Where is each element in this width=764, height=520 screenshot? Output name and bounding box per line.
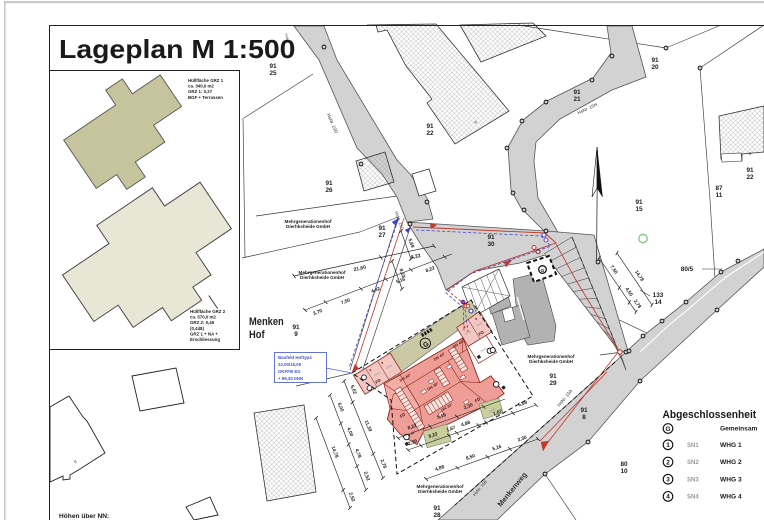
svg-text:SN4: SN4	[687, 495, 699, 501]
svg-text:91: 91	[269, 63, 277, 70]
svg-text:22,00/15,00: 22,00/15,00	[278, 362, 302, 367]
svg-text:14: 14	[654, 299, 662, 306]
svg-text:91: 91	[378, 225, 386, 232]
svg-text:25: 25	[269, 70, 277, 77]
svg-text:91: 91	[580, 407, 588, 414]
svg-text:ca. 570,0 m2: ca. 570,0 m2	[190, 315, 216, 320]
svg-text:Hof: Hof	[249, 329, 265, 341]
svg-text:91: 91	[487, 234, 495, 241]
svg-text:G: G	[666, 426, 671, 433]
svg-text:SN3: SN3	[687, 477, 699, 483]
svg-text:20: 20	[651, 64, 659, 71]
svg-text:(0,448): (0,448)	[190, 326, 204, 331]
svg-text:91: 91	[573, 89, 581, 96]
svg-text:Gemeinsam: Gemeinsam	[720, 426, 758, 433]
svg-text:Baufeld Hoftyp4: Baufeld Hoftyp4	[278, 355, 312, 360]
svg-text:ca. 340,0 m2: ca. 340,0 m2	[188, 84, 214, 89]
svg-text:Abgeschlossenheit: Abgeschlossenheit	[663, 409, 757, 421]
svg-text:BGF + Terrassen: BGF + Terrassen	[188, 95, 223, 100]
svg-text:15: 15	[635, 206, 643, 213]
svg-text:80: 80	[620, 461, 628, 468]
svg-text:91: 91	[549, 373, 557, 380]
svg-text:91: 91	[635, 199, 643, 206]
svg-text:87: 87	[715, 185, 723, 192]
svg-text:Dierhksheide GmbH: Dierhksheide GmbH	[418, 489, 463, 494]
svg-text:22: 22	[426, 130, 434, 137]
svg-text:Dierhksheide GmbH: Dierhksheide GmbH	[300, 275, 345, 280]
svg-text:WHG 4: WHG 4	[720, 494, 742, 501]
svg-text:OKFFB EG: OKFFB EG	[278, 369, 301, 374]
svg-text:SN2: SN2	[687, 460, 699, 466]
svg-text:Hüllfläche GRZ 2: Hüllfläche GRZ 2	[190, 309, 226, 314]
svg-text:Lageplan M 1:500: Lageplan M 1:500	[59, 34, 295, 64]
svg-text:11: 11	[716, 192, 723, 199]
svg-text:10: 10	[620, 468, 628, 475]
svg-text:28: 28	[433, 512, 441, 519]
svg-text:30: 30	[487, 241, 495, 248]
svg-text:1: 1	[666, 442, 670, 449]
svg-text:Höhen über NN:: Höhen über NN:	[59, 513, 109, 520]
svg-text:4: 4	[666, 494, 670, 501]
svg-text:26: 26	[325, 187, 333, 194]
svg-text:21: 21	[573, 96, 581, 103]
svg-text:GRZ 1: 0,27: GRZ 1: 0,27	[188, 89, 213, 94]
svg-text:2: 2	[666, 459, 670, 466]
svg-text:Menken: Menken	[249, 316, 284, 328]
svg-text:91: 91	[325, 180, 333, 187]
svg-text:WHG 2: WHG 2	[720, 459, 742, 466]
svg-text:91: 91	[651, 57, 659, 64]
svg-text:133: 133	[653, 292, 664, 299]
svg-text:II: II	[749, 151, 751, 156]
svg-text:WHG 3: WHG 3	[720, 476, 742, 483]
svg-text:SN1: SN1	[687, 443, 699, 449]
svg-text:Dierhksheide GmbH: Dierhksheide GmbH	[529, 359, 574, 364]
svg-text:8: 8	[582, 414, 586, 421]
svg-text:G: G	[541, 268, 545, 274]
svg-text:91: 91	[292, 324, 300, 331]
svg-text:Dierhksheide GmbH: Dierhksheide GmbH	[286, 224, 331, 229]
svg-text:29: 29	[549, 380, 557, 387]
svg-text:9: 9	[294, 331, 298, 338]
svg-text:GRZ 2: 0,45: GRZ 2: 0,45	[190, 320, 215, 325]
svg-text:GRZ 1 + NA +: GRZ 1 + NA +	[190, 331, 218, 336]
svg-text:80/5: 80/5	[681, 266, 694, 273]
svg-text:27: 27	[378, 232, 386, 239]
svg-text:91: 91	[433, 505, 441, 512]
svg-text:+ 99,30 üNN: + 99,30 üNN	[278, 376, 303, 381]
svg-text:22: 22	[746, 174, 754, 181]
svg-text:WHG 1: WHG 1	[720, 442, 742, 449]
svg-text:91: 91	[426, 123, 434, 130]
svg-text:3: 3	[666, 477, 670, 484]
svg-text:Hüllfläche GRZ 1: Hüllfläche GRZ 1	[188, 78, 224, 83]
svg-text:91: 91	[746, 167, 754, 174]
svg-text:Erschliessung: Erschliessung	[190, 337, 220, 342]
